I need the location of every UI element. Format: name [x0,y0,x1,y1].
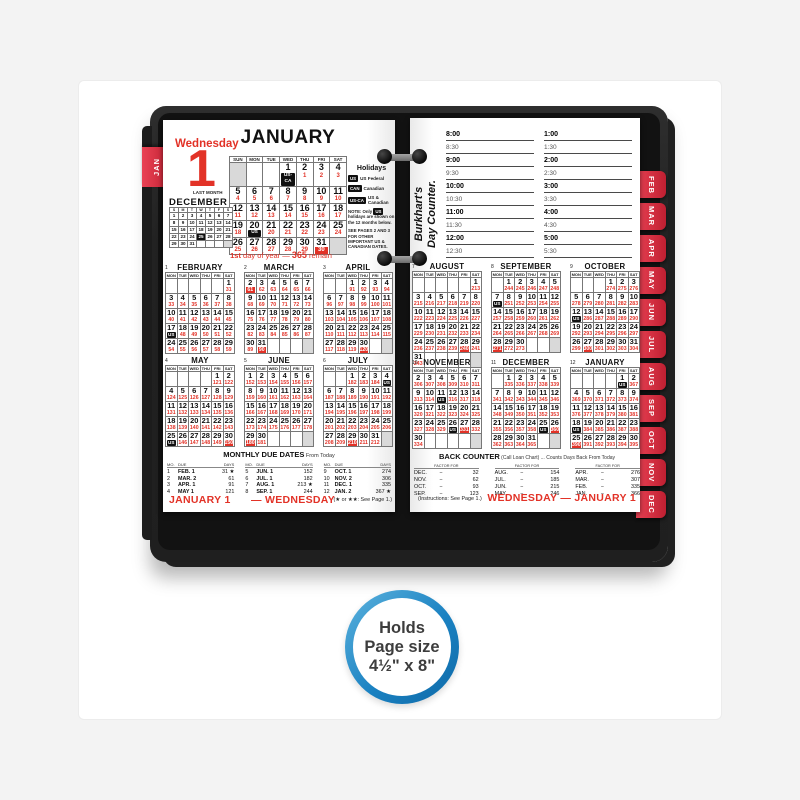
day-cell: 16350 [515,404,527,419]
day-cell: 19353 [549,404,561,419]
day-cell: 14379 [605,404,617,419]
day-cell: 29241 [470,338,482,353]
day-cell: 1152 [245,372,257,387]
day-cell [166,372,178,387]
tab-sep: SEP [636,395,666,422]
day-cell: 665 [291,279,303,294]
day-cell [200,279,212,294]
day-cell: 16259 [515,308,527,323]
day-cell [177,372,189,387]
day-cell: 18322 [436,404,448,419]
day-cell [447,434,459,449]
day-cell: 109 [313,186,330,203]
day-cell: 3215 [413,293,425,308]
ring-knob-left [377,251,392,266]
day-cell: 15166 [245,402,257,417]
day-cell: 24236 [413,338,425,353]
day-cell: 23296 [617,323,629,338]
due-dates-groups: MO.DUEDAYS1FEB. 131 ★2MAR. 2613APR. 1914… [167,462,391,495]
day-cell: 15349 [503,404,515,419]
day-cell: 6157 [302,372,314,387]
day-cell: 19323 [447,404,459,419]
day-cell: 98 [296,186,313,203]
day-cell: 26360 [549,419,561,434]
back-counter-row: JUN.−215 [495,484,560,491]
day-cell [594,278,606,293]
day-cell: 2151 [212,324,224,339]
day-cell [212,279,224,294]
day-cell: 22 [170,234,179,241]
day-cell [189,372,201,387]
mini-month-june: 5JUNEMONTUEWEDTHUFRISAT11522153315441555… [244,356,314,447]
day-cell: 737 [212,294,224,309]
day-cell [215,241,224,248]
day-cell: 12US [571,308,583,323]
day-cell: 29149 [212,432,224,447]
day-cell: 11101 [381,294,393,309]
due-date-row: 5JUN. 1152 [245,469,312,476]
day-cell: 21386 [605,419,617,434]
day-cell: 4369 [571,389,583,404]
day-cell: 31 [188,241,197,248]
day-cell: 13164 [302,387,314,402]
day-cell [200,372,212,387]
day-cell: 6310 [459,374,471,389]
day-cell: 766 [302,279,314,294]
day-cell: 27239 [447,338,459,353]
day-cell: 9374 [628,389,640,404]
day-cell: 31365 [526,434,538,449]
day-cell [571,278,583,293]
day-cell: 12163 [291,387,303,402]
schedule-row: 5:30 [544,247,632,260]
day-cell: 10191 [370,387,382,402]
day-cell: 15380 [617,404,629,419]
day-cell: 23 [179,234,188,241]
tab-dec: DEC [636,491,666,518]
day-cell: 12377 [582,404,594,419]
schedule-afternoon-column: 1:001:302:002:303:003:304:004:305:005:30 [544,130,632,260]
day-cell: 2 [179,213,188,220]
day-cell: 2120 [263,220,280,237]
day-cell: 14348 [492,404,504,419]
left-calendar-page: Wednesday 1 JANUARY SUNMONTUEWEDTHUFRISA… [163,120,395,512]
day-cell: 2584 [268,324,280,339]
day-cell: 1US [617,374,629,389]
schedule-row: 1:00 [544,130,632,143]
day-cell: 1473 [302,294,314,309]
day-cell: 20201 [324,417,336,432]
day-cell: 4216 [424,293,436,308]
day-cell [582,278,594,293]
day-cell: 1069 [256,294,268,309]
due-date-row: 7AUG. 1213 ★ [245,482,312,489]
monthly-due-dates: MONTHLY DUE DATES From Today MO.DUEDAYS1… [167,450,391,495]
day-cell: 17229 [413,323,425,338]
day-cell: 29302 [605,338,617,353]
day-cell: 8159 [245,387,257,402]
day-cell: 24358 [526,419,538,434]
day-cell: 30395 [628,434,640,449]
day-cell [246,163,263,187]
day-cell: 5370 [582,389,594,404]
day-cell: 30334 [413,434,425,449]
day-cell: 23388 [628,419,640,434]
mini-month-october: 9OCTOBERMONTUEWEDTHUFRISAT12742275327652… [570,262,640,353]
ring-knob-left [377,149,392,164]
legend-item: USUS Federal [348,175,395,182]
schedule-row: 8:00 [446,130,534,143]
day-cell: 43 [330,163,347,187]
schedule-row: 2:00 [544,156,632,169]
day-cell: 434 [177,294,189,309]
day-cell: 30120 [358,339,370,354]
day-cell: 6187 [324,387,336,402]
due-date-row: 10NOV. 2306 [324,476,391,483]
day-cell: 7280 [594,293,606,308]
day-cell: 8342 [503,389,515,404]
due-dates-group: MO.DUEDAYS5JUN. 11526JUL. 11827AUG. 1213… [245,462,312,495]
calendar-table: MONTUEWEDTHUFRISAT2613624635646657669681… [244,272,314,354]
day-cell: 2221 [280,220,297,237]
day-cell: 191 [347,279,359,294]
day-cell [335,279,347,294]
day-cell: 30364 [515,434,527,449]
day-cell: 21141 [200,417,212,432]
day-cell: 3184 [370,372,382,387]
day-cell: 22234 [470,323,482,338]
day-cell: 1244 [503,278,515,293]
day-cell: 27117 [324,339,336,354]
day-cell: 14226 [459,308,471,323]
schedule-row: 11:00 [446,208,534,221]
day-cell: 19139 [177,417,189,432]
day-cell: 2656 [189,339,201,354]
day-cell: 1545 [223,309,235,324]
day-cell: 11223 [424,308,436,323]
mini-month-november: 10NOVEMBERMONTUEWEDTHUFRISAT230633074308… [412,358,482,449]
calendar-table: MONTUEWEDTHUFRISAT1313334345356367378381… [165,272,235,354]
day-cell [492,278,504,293]
month-tabs-right: FEBMARAPRMAYJUNJULAUGSEPOCTNOVDEC [636,171,666,523]
day-cell: 393 [370,279,382,294]
day-cell: 7188 [335,387,347,402]
day-cell: 6279 [582,293,594,308]
day-cell: 8281 [605,293,617,308]
day-cell: 1514 [280,203,297,220]
day-cell: 17168 [268,402,280,417]
day-cell: 30150 [223,432,235,447]
day-cell [268,339,280,354]
day-cell: 2306 [413,374,425,389]
day-cell: 28332 [470,419,482,434]
day-cell: 25206 [381,417,393,432]
day-cell: 3307 [424,374,436,389]
calendar-table: MONTUEWEDTHUFRISAT1182218331844US6187718… [323,365,393,447]
day-cell: 5125 [177,387,189,402]
day-cell: 18352 [538,404,550,419]
day-cell: 2483 [256,324,268,339]
day-cell: 4 [197,213,206,220]
day-cell [166,279,178,294]
day-cell [424,278,436,293]
day-cell: 4US [381,372,393,387]
day-cell [302,432,314,447]
day-cell: 13378 [594,404,606,419]
day-cell: 22173 [245,417,257,432]
day-cell: 2183 [358,372,370,387]
day-cell: 7372 [605,389,617,404]
day-cell: 3337 [526,374,538,389]
day-cell: 5339 [549,374,561,389]
day-cell: 16106 [358,309,370,324]
day-cell: 21 [224,227,233,234]
day-cell: 18261 [538,308,550,323]
day-cell: 27331 [459,419,471,434]
day-cell: 11162 [279,387,291,402]
mini-month-april: 3APRILMONTUEWEDTHUFRISAT1912923934946967… [323,263,393,354]
day-cell: 65 [246,186,263,203]
day-cell: 1776 [256,309,268,324]
day-cell: 22203 [347,417,359,432]
day-cell [447,278,459,293]
day-cell: 3276 [628,278,640,293]
tab-nov: NOV [636,459,666,486]
day-cell: 999 [358,294,370,309]
schedule-row: 8:30 [446,143,534,156]
holiday-badge: CAN [348,185,362,192]
day-cell: 17198 [370,402,382,417]
day-cell: 14318 [470,389,482,404]
day-cell [268,432,280,447]
day-cell: 2153 [256,372,268,387]
day-cell: 21111 [335,324,347,339]
day-cell [381,432,393,447]
day-cell: 8251 [503,293,515,308]
day-cell [291,432,303,447]
day-cell: 24205 [370,417,382,432]
back-counter-row: NOV.−62 [414,477,479,484]
day-cell: 2180 [302,309,314,324]
due-dates-title: MONTHLY DUE DATES From Today [167,450,391,459]
day-cell [582,374,594,389]
schedule-row: 9:30 [446,169,534,182]
calendar-table: MONTUEWEDTHUFRISAT124422453246424752487U… [491,271,561,353]
day-cell: 22387 [617,419,629,434]
footer-weekday: — WEDNESDAY [251,494,335,506]
back-counter-title: BACK COUNTER (Call Loan Chart) ... Count… [414,452,640,461]
day-cell [549,434,561,449]
day-cell: 13133 [189,402,201,417]
day-cell: 1949 [189,324,201,339]
big-date-number: 1 [187,144,216,194]
day-cell: 12 [206,220,215,227]
day-cell: 17321 [424,404,436,419]
day-cell [605,374,617,389]
day-cell: 7 [224,213,233,220]
day-cell: 31304 [628,338,640,353]
day-cell: 24114 [370,324,382,339]
footer-date: JANUARY 1 [169,494,231,506]
day-cell: 6126 [189,387,201,402]
day-cell [436,434,448,449]
day-cell: 29363 [503,434,515,449]
day-cell: 25268 [538,323,550,338]
calendar-table: MONTUEWEDTHUFRISAT1152215331544155515661… [244,365,314,447]
day-cell: 24297 [628,323,640,338]
day-cell: 29 [170,241,179,248]
day-cell: 27208 [324,432,336,447]
day-cell: 2423 [313,220,330,237]
day-cell: 8128 [212,387,224,402]
day-cell: 1121 [212,372,224,387]
day-of-year-line: 1st day of year — 365 remain [199,250,363,260]
day-cell: 2050 [200,324,212,339]
day-cell: 17 [188,227,197,234]
mini-month-december: 11DECEMBERMONTUEWEDTHUFRISAT133523363337… [491,358,561,449]
page-size-badge-text: Holds Page size 4½" x 8" [353,598,451,696]
day-cell [302,339,314,354]
ring-knob-right [412,251,427,266]
january-calendar-grid: SUNMONTUEWEDTHUFRISAT1US-CA2132435465768… [229,156,347,255]
day-cell: 25237 [424,338,436,353]
day-cell: 9 [179,220,188,227]
day-cell: 28271 [492,338,504,353]
day-cell: 1615 [296,203,313,220]
schedule-row: 12:00 [446,234,534,247]
day-cell: 32 [313,163,330,187]
day-cell [291,339,303,354]
day-cell: 2079 [291,309,303,324]
day-cell [370,339,382,354]
back-counter-row: AUG.−154 [495,470,560,477]
binder-ring-top [377,146,427,168]
day-cell: 15105 [347,309,359,324]
day-cell: 28301 [594,338,606,353]
day-cell: 1978 [279,309,291,324]
day-cell: 131 [223,279,235,294]
day-cell: 18108 [381,309,393,324]
day-cell: 14104 [335,309,347,324]
due-date-row: 2MAR. 261 [167,476,234,483]
day-cell: 1US-CA [280,163,297,187]
day-cell: 23174 [256,417,268,432]
day-cell: 28148 [200,432,212,447]
day-cell [459,278,471,293]
footer-weekday-date: WEDNESDAY — JANUARY 1 [487,492,636,504]
day-cell: 23327 [413,419,425,434]
day-cell [538,338,550,353]
day-cell: 11131 [166,402,178,417]
day-cell [492,374,504,389]
day-cell: 31212 [370,432,382,447]
day-cell [571,374,583,389]
day-cell: 1242 [189,309,201,324]
day-cell: 11254 [538,293,550,308]
day-cell: 18US [571,419,583,434]
due-dates-group: MO.DUEDAYS9OCT. 127410NOV. 230611DEC. 13… [324,462,391,495]
day-cell: 27 [215,234,224,241]
day-cell: 14287 [594,308,606,323]
day-cell: 2858 [212,339,224,354]
day-cell: 19262 [549,308,561,323]
day-cell: 9282 [617,293,629,308]
day-cell: 19292 [571,323,583,338]
tab-feb: FEB [636,171,666,198]
day-cell: 1716 [313,203,330,220]
day-cell: 10344 [526,389,538,404]
day-cell: 25 [197,234,206,241]
day-cell: 11US [436,389,448,404]
holidays-note: NOTE: Only US holidays are shown on the … [348,209,395,225]
day-cell: 7127 [200,387,212,402]
day-cell: 14 [224,220,233,227]
day-cell: 18230 [424,323,436,338]
day-cell: 12132 [177,402,189,417]
schedule-row: 1:30 [544,143,632,156]
day-cell: 22142 [212,417,224,432]
instructions-note: (Instructions: See Page 1.) [418,496,482,502]
holiday-badge: US-CA [348,197,366,204]
day-cell: 2786 [291,324,303,339]
day-cell: 15288 [605,308,617,323]
day-cell: 23266 [515,323,527,338]
back-counter-row: OCT.−93 [414,484,479,491]
tab-aug: AUG [636,363,666,390]
back-counter-row: JUL.−185 [495,477,560,484]
stand-left-flange [142,126,152,540]
last-month-grid: SMTWTFS123456789101112131415161718192021… [169,207,233,248]
right-months-row-1: 7AUGUSTMONTUEWEDTHUFRISAT121332154216521… [412,262,640,358]
day-cell: 13317 [459,389,471,404]
day-cell: 13103 [324,309,336,324]
calendar-table: MONTUEWEDTHUFRISAT1912923934946967978989… [323,272,393,354]
day-cell: 3246 [526,278,538,293]
day-cell: 292 [358,279,370,294]
day-cell: 9129 [223,387,235,402]
day-cell: 25115 [381,324,393,339]
day-cell: 8373 [617,389,629,404]
day-cell [381,339,393,354]
day-cell: 19231 [436,323,448,338]
day-cell: 23357 [515,419,527,434]
day-cell: 9252 [515,293,527,308]
day-cell: 28362 [492,434,504,449]
day-cell: 26269 [549,323,561,338]
day-cell: 20110 [324,324,336,339]
day-cell: 1040 [166,309,178,324]
due-date-row: 11DEC. 1335 [324,482,391,489]
day-cell: 2367 [628,374,640,389]
day-cell: 18 [197,227,206,234]
day-cell [594,374,606,389]
day-cell: 2336 [515,374,527,389]
day-cell: 22295 [605,323,617,338]
day-cell: 3 [188,213,197,220]
day-cell: 16320 [413,404,425,419]
day-cell: 28 [224,234,233,241]
left-months-row-2: 4MAYMONTUEWEDTHUFRISAT112121224124512561… [165,356,393,452]
day-cell: 696 [324,294,336,309]
day-cell: 24175 [268,417,280,432]
day-cell [263,163,280,187]
mini-month-september: 8SEPTEMBERMONTUEWEDTHUFRISAT124422453246… [491,262,561,353]
day-cell: 5217 [436,293,448,308]
tab-jul: JUL [636,331,666,358]
day-cell: 27178 [302,417,314,432]
day-cell: 26US [447,419,459,434]
day-cell: 13286 [582,308,594,323]
